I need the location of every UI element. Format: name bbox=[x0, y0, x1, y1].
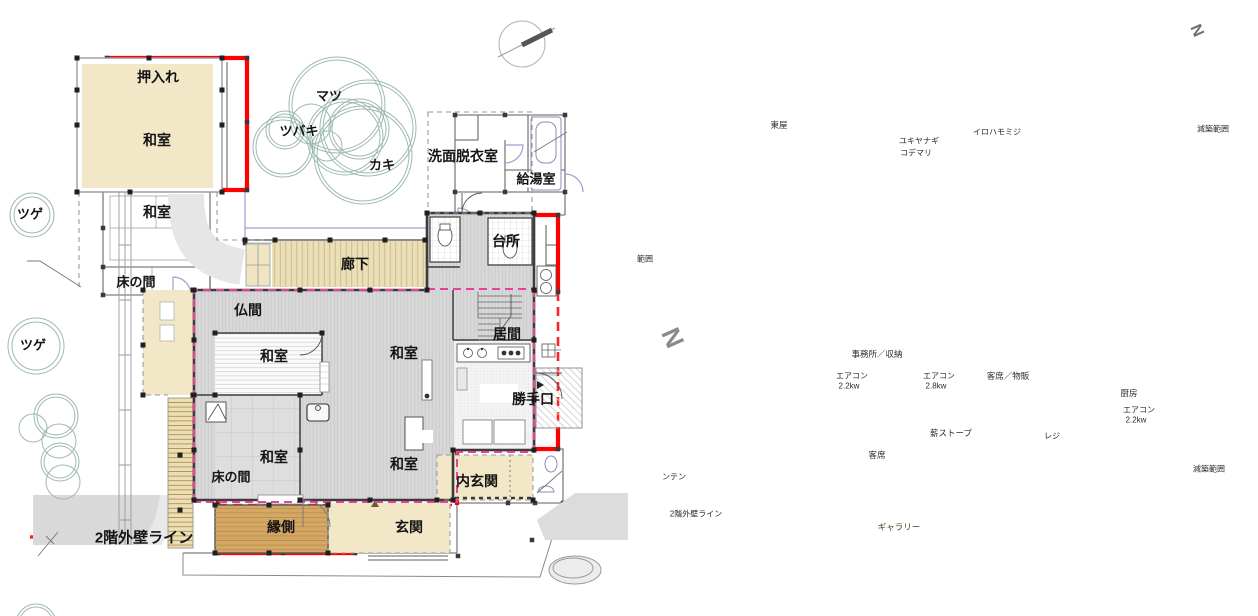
north-n-mark: N bbox=[1185, 22, 1207, 40]
north-arrow bbox=[498, 21, 555, 67]
area-label-azumaya: 東屋 bbox=[770, 121, 787, 131]
room-label-chubo: 厨房 bbox=[1120, 389, 1137, 399]
tree-label-irohamomiji: イロハモミジ bbox=[973, 127, 1021, 136]
aircon-label: エアコン bbox=[923, 371, 955, 380]
room-label-jimusho: 事務所／収納 bbox=[851, 350, 902, 360]
gallery-deck bbox=[215, 505, 328, 553]
tree-label-yukiyanagi: ユキヤナギ bbox=[899, 136, 939, 145]
label-reji: レジ bbox=[1044, 431, 1060, 440]
north-deck bbox=[244, 240, 427, 287]
annotation-genchiku-hanni: 減築範囲 bbox=[1197, 124, 1229, 133]
annotation-genchiku-hanni: 減築範囲 bbox=[1193, 464, 1225, 473]
floor-plan-page: 押入れ 和室 和室 床の間 ツゲ ツゲ マツ ツバキ カキ 洗面脱衣室 給湯室 … bbox=[0, 0, 1258, 616]
area-label-gallery: ギャラリー bbox=[878, 523, 921, 533]
annotation-hanni-partial: 範囲 bbox=[637, 254, 653, 263]
aircon-kw-label: 2.2kw bbox=[1126, 415, 1147, 424]
aircon-label: エアコン bbox=[1123, 405, 1155, 414]
garden-stone bbox=[549, 556, 601, 584]
right-floor-plan bbox=[0, 0, 628, 616]
label-2f-wall-line: 2階外壁ライン bbox=[670, 509, 722, 518]
tree-label-kodemari: コデマリ bbox=[900, 148, 932, 157]
aircon-kw-label: 2.8kw bbox=[926, 381, 947, 390]
room-label-kyakuseki: 客席 bbox=[868, 451, 885, 461]
azumaya bbox=[77, 58, 222, 192]
east-porch bbox=[536, 368, 582, 428]
tree-label-nanten-partial: ンテン bbox=[662, 472, 686, 481]
label-maki-stove: 薪ストーブ bbox=[930, 429, 972, 439]
room-label-kyakuseki-buppan: 客席／物販 bbox=[987, 372, 1030, 382]
walkway bbox=[119, 192, 131, 545]
garden-path bbox=[186, 194, 242, 267]
aircon-label: エアコン bbox=[836, 371, 868, 380]
aircon-kw-label: 2.2kw bbox=[839, 381, 860, 390]
north-n-mark: N bbox=[655, 323, 690, 352]
